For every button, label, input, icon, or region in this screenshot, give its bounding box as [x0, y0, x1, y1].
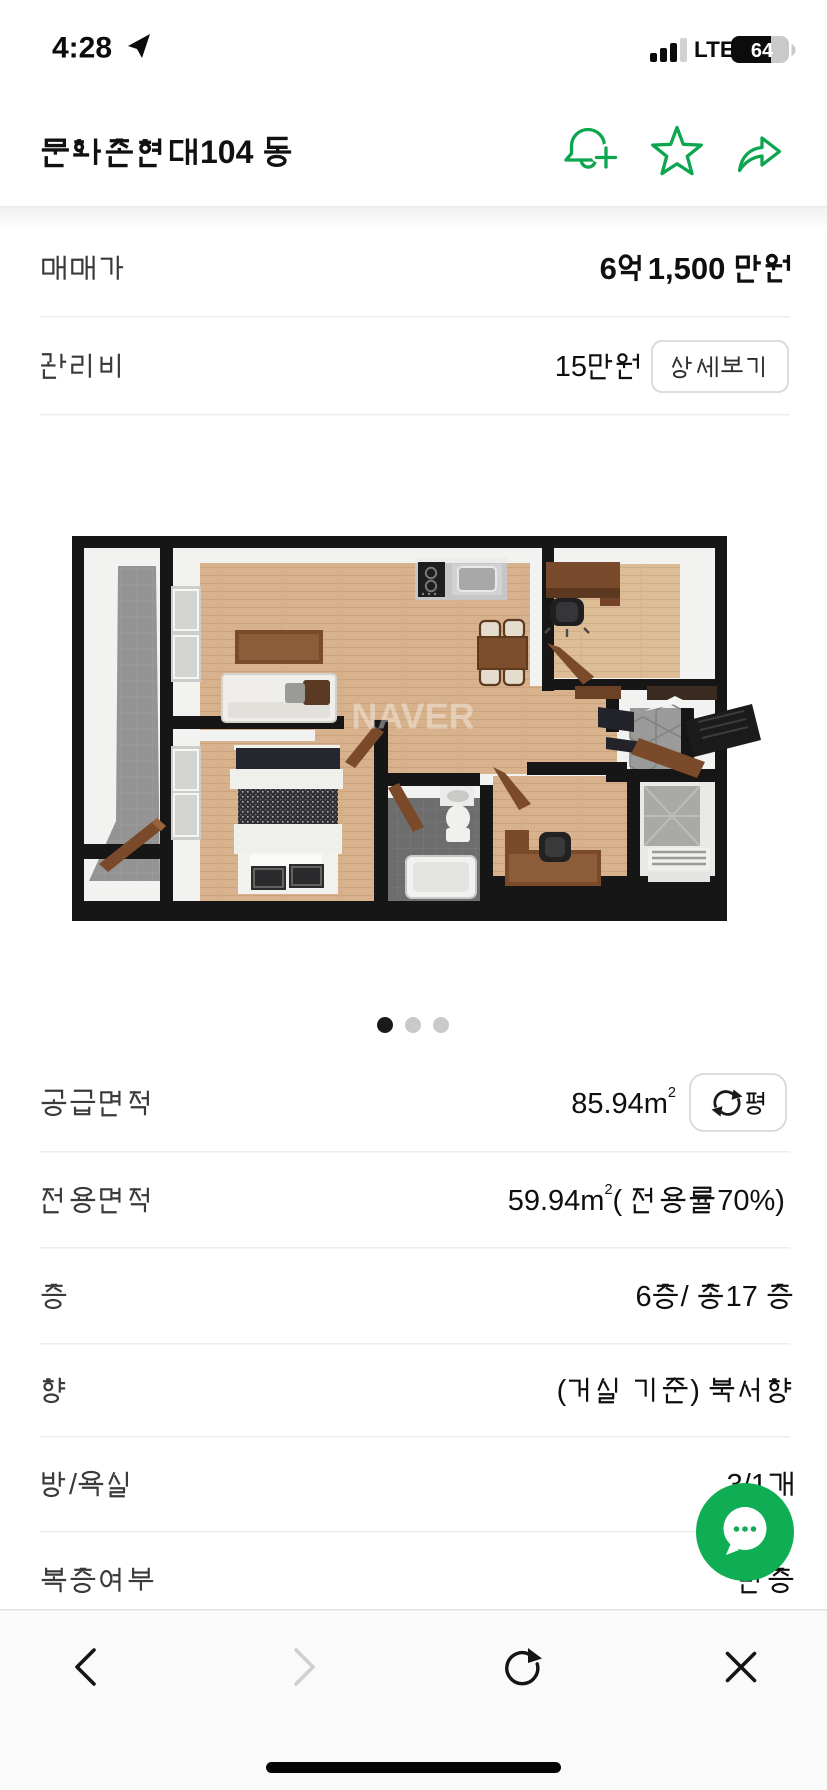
svg-text:6: 6: [600, 251, 617, 286]
svg-text:): ): [690, 1375, 700, 1407]
svg-text:70%): 70%): [717, 1185, 785, 1217]
svg-text:(: (: [613, 1185, 623, 1217]
svg-text:/: /: [681, 1281, 690, 1313]
svg-text:NAVER: NAVER: [351, 696, 474, 737]
svg-text:2: 2: [668, 1085, 676, 1101]
svg-text:(: (: [557, 1375, 567, 1407]
svg-text:64: 64: [751, 40, 774, 62]
svg-text:4:28: 4:28: [52, 32, 112, 65]
svg-text:/: /: [69, 1469, 78, 1501]
svg-text:1,500: 1,500: [648, 251, 726, 286]
svg-text:6: 6: [635, 1281, 651, 1313]
svg-text:LTE: LTE: [694, 37, 735, 62]
svg-text:85.94m: 85.94m: [571, 1088, 668, 1120]
svg-text:17: 17: [726, 1281, 758, 1313]
svg-text:104: 104: [200, 134, 254, 170]
svg-text:59.94m: 59.94m: [508, 1185, 605, 1217]
svg-text:2: 2: [604, 1182, 612, 1198]
svg-text:15: 15: [555, 351, 587, 383]
